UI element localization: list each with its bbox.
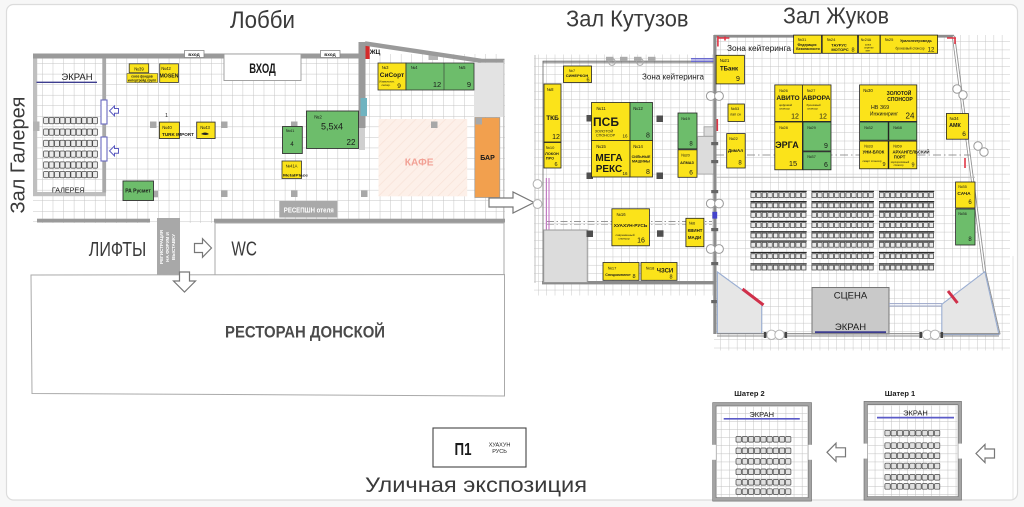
svg-text:Зал Галерея: Зал Галерея — [7, 97, 30, 214]
svg-text:№39: №39 — [134, 67, 144, 72]
svg-text:6: 6 — [689, 170, 693, 177]
svg-text:ВЫСТАВКУ: ВЫСТАВКУ — [171, 234, 176, 260]
svg-text:АЛМАЗ: АЛМАЗ — [680, 161, 694, 165]
svg-text:ТБанк: ТБанк — [720, 67, 738, 73]
svg-text:8: 8 — [669, 275, 672, 281]
svg-text:№4: №4 — [411, 65, 418, 70]
svg-text:КВИНТ: КВИНТ — [688, 228, 703, 233]
svg-text:№58: №58 — [893, 125, 903, 130]
svg-text:ВХОД: ВХОД — [249, 61, 276, 76]
svg-text:8: 8 — [646, 133, 650, 140]
svg-text:лап сн: лап сн — [730, 113, 741, 117]
svg-text:ЛИФТЫ: ЛИФТЫ — [89, 239, 147, 261]
svg-text:№43: №43 — [200, 125, 210, 130]
svg-text:24: 24 — [906, 112, 915, 121]
svg-text:РЕГИСТРАЦИЯ: РЕГИСТРАЦИЯ — [159, 230, 164, 264]
svg-text:5,5х4: 5,5х4 — [321, 122, 343, 132]
svg-text:6: 6 — [586, 78, 589, 84]
svg-text:№34: №34 — [949, 116, 959, 121]
svg-text:ЖЦ: ЖЦ — [369, 49, 381, 56]
svg-text:1: 1 — [165, 113, 168, 119]
svg-text:спонсор: спонсор — [894, 164, 904, 167]
svg-text:Спецкомплект: Спецкомплект — [605, 273, 631, 277]
svg-text:Шатер 2: Шатер 2 — [734, 389, 764, 398]
svg-text:№5: №5 — [459, 65, 466, 70]
svg-text:№41А: №41А — [286, 164, 298, 169]
svg-text:№24: №24 — [827, 37, 837, 42]
svg-text:ЛОКОН: ЛОКОН — [545, 152, 559, 156]
svg-text:СПОНСОР: СПОНСОР — [887, 97, 913, 103]
svg-text:РЕСЕПШН отеля: РЕСЕПШН отеля — [284, 207, 334, 214]
svg-text:9: 9 — [736, 76, 740, 83]
svg-text:БАР: БАР — [480, 153, 495, 162]
svg-text:ХУАХУН: ХУАХУН — [489, 442, 511, 448]
svg-text:УНИ-БЛОК: УНИ-БЛОК — [863, 150, 885, 155]
svg-text:МОТОРС: МОТОРС — [831, 47, 848, 52]
svg-text:ЭКРАН: ЭКРАН — [749, 410, 774, 419]
svg-text:СЦЕНА: СЦЕНА — [834, 291, 868, 302]
svg-text:МЕГА: МЕГА — [595, 153, 622, 164]
svg-text:MetalPlace: MetalPlace — [283, 173, 309, 178]
svg-text:ЭКРАН: ЭКРАН — [903, 409, 928, 418]
svg-text:СиСорт: СиСорт — [380, 72, 404, 79]
svg-text:№12: №12 — [633, 106, 643, 111]
svg-text:№28: №28 — [779, 125, 789, 130]
svg-text:12: 12 — [791, 114, 799, 121]
svg-text:9: 9 — [824, 143, 828, 150]
svg-text:Уличная экспозиция: Уличная экспозиция — [365, 474, 587, 497]
svg-text:мет: мет — [866, 49, 871, 53]
svg-text:вход: вход — [324, 53, 335, 58]
svg-text:6: 6 — [962, 131, 966, 138]
svg-text:8: 8 — [851, 48, 854, 54]
svg-text:№31: №31 — [798, 37, 808, 42]
svg-text:№37: №37 — [807, 154, 817, 159]
svg-text:смарт спонсор: смарт спонсор — [863, 159, 882, 163]
svg-text:бронзовый спонсор: бронзовый спонсор — [895, 47, 924, 51]
svg-text:№27: №27 — [807, 88, 817, 93]
svg-text:№15: №15 — [596, 144, 606, 149]
svg-text:Зал Жуков: Зал Жуков — [783, 3, 889, 29]
svg-text:№16: №16 — [616, 212, 626, 217]
svg-text:ГАЛЕРЕЯ: ГАЛЕРЕЯ — [52, 185, 85, 194]
svg-text:9: 9 — [882, 162, 885, 168]
svg-text:№35: №35 — [958, 184, 968, 189]
svg-text:№21: №21 — [720, 58, 730, 63]
svg-text:12: 12 — [928, 48, 935, 54]
svg-text:ПОРТ: ПОРТ — [894, 155, 906, 160]
svg-text:MOSEN: MOSEN — [159, 74, 178, 80]
svg-text:РУСЬ: РУСЬ — [492, 449, 507, 455]
svg-text:№17: №17 — [608, 266, 618, 271]
svg-text:ЗОЛОТОЙ: ЗОЛОТОЙ — [887, 89, 912, 97]
svg-text:П1: П1 — [455, 439, 472, 459]
svg-text:9: 9 — [911, 163, 914, 169]
svg-text:№10: №10 — [546, 145, 556, 150]
svg-text:АВИТО: АВИТО — [776, 95, 799, 102]
svg-text:TURK IMPORT: TURK IMPORT — [162, 132, 194, 137]
svg-text:№18: №18 — [646, 266, 656, 271]
svg-text:12: 12 — [433, 80, 441, 89]
svg-text:№24А: №24А — [861, 38, 872, 42]
svg-text:№30: №30 — [863, 88, 873, 93]
svg-text:спонсор: спонсор — [779, 107, 790, 111]
svg-text:ТКБ: ТКБ — [546, 115, 559, 122]
svg-text:Шатер 1: Шатер 1 — [885, 389, 915, 398]
svg-text:№29: №29 — [807, 125, 817, 130]
svg-text:ПРО: ПРО — [546, 157, 554, 161]
svg-text:WC: WC — [231, 239, 257, 261]
svg-text:№59: №59 — [893, 144, 903, 149]
svg-text:6: 6 — [824, 162, 828, 169]
svg-text:СПОНСОР: СПОНСОР — [596, 134, 616, 138]
svg-text:15: 15 — [789, 159, 797, 168]
svg-text:спонсор: спонсор — [807, 107, 818, 111]
svg-text:№32: №32 — [864, 125, 874, 130]
svg-text:8: 8 — [646, 169, 650, 176]
svg-text:Уралэлектромедь: Уралэлектромедь — [900, 39, 933, 43]
svg-text:Лобби: Лобби — [230, 7, 295, 34]
svg-text:САЧА: САЧА — [957, 191, 971, 197]
svg-text:Зал Кутузов: Зал Кутузов — [566, 6, 689, 32]
svg-text:№6: №6 — [689, 221, 696, 226]
svg-text:Безопасности: Безопасности — [796, 47, 820, 51]
svg-text:ЭРГА: ЭРГА — [775, 140, 799, 150]
svg-text:№42: №42 — [161, 66, 171, 71]
svg-text:№14: №14 — [633, 144, 643, 149]
svg-text:РЕКС: РЕКС — [596, 164, 623, 175]
svg-text:Зона кейтеринга: Зона кейтеринга — [642, 73, 705, 82]
svg-text:Инжиниринг: Инжиниринг — [870, 112, 898, 118]
svg-text:№25: №25 — [885, 37, 895, 42]
svg-text:КАФЕ: КАФЕ — [405, 156, 434, 168]
svg-text:№41: №41 — [286, 128, 296, 133]
svg-text:№26: №26 — [779, 88, 789, 93]
svg-text:12: 12 — [819, 114, 827, 121]
svg-text:№11: №11 — [596, 106, 606, 111]
svg-text:6: 6 — [554, 162, 557, 168]
svg-text:вход: вход — [188, 53, 199, 58]
svg-text:16: 16 — [622, 134, 628, 139]
svg-text:спонсор: спонсор — [618, 237, 630, 241]
svg-text:ПСБ: ПСБ — [593, 115, 619, 129]
svg-text:№8: №8 — [547, 87, 554, 92]
svg-text:СИНЕРКОН: СИНЕРКОН — [566, 73, 589, 78]
svg-text:НА ФОРУМ И: НА ФОРУМ И — [165, 232, 170, 262]
svg-text:ЭКРАН: ЭКРАН — [61, 72, 92, 83]
svg-text:16: 16 — [622, 171, 628, 176]
svg-text:16: 16 — [637, 238, 645, 245]
svg-text:№2: №2 — [314, 115, 322, 121]
svg-text:8: 8 — [632, 274, 635, 280]
svg-text:12: 12 — [552, 134, 560, 141]
svg-text:№3: №3 — [382, 65, 389, 70]
svg-text:ДимАл: ДимАл — [728, 148, 743, 153]
svg-text:22: 22 — [347, 138, 356, 147]
svg-text:СИЛЬНЫЕ: СИЛЬНЫЕ — [632, 155, 651, 159]
svg-text:МАДИ: МАДИ — [688, 235, 701, 240]
svg-text:№36: №36 — [958, 211, 968, 216]
svg-text:9: 9 — [467, 80, 471, 89]
svg-text:№22: №22 — [729, 136, 739, 141]
svg-text:РА Русмет: РА Русмет — [125, 189, 151, 195]
svg-text:№40: №40 — [162, 125, 172, 130]
svg-text:№20: №20 — [681, 153, 691, 158]
svg-text:РЕСТОРАН ДОНСКОЙ: РЕСТОРАН ДОНСКОЙ — [225, 323, 385, 342]
svg-text:Зона кейтеринга: Зона кейтеринга — [727, 44, 792, 53]
svg-text:9: 9 — [397, 83, 401, 90]
svg-text:сепар.: сепар. — [382, 83, 391, 87]
svg-text:МАШИНЫ: МАШИНЫ — [632, 160, 650, 164]
svg-text:№53: №53 — [731, 107, 739, 111]
svg-text:АМК: АМК — [949, 123, 961, 129]
svg-text:ХУАХУН-РУСЬ: ХУАХУН-РУСЬ — [614, 223, 648, 229]
svg-text:АВРОРА: АВРОРА — [803, 95, 831, 102]
svg-text:НВ 369: НВ 369 — [871, 105, 889, 111]
svg-text:№19: №19 — [681, 116, 691, 121]
svg-text:интертрейд групп: интертрейд групп — [128, 79, 156, 83]
svg-text:№33: №33 — [864, 144, 874, 149]
